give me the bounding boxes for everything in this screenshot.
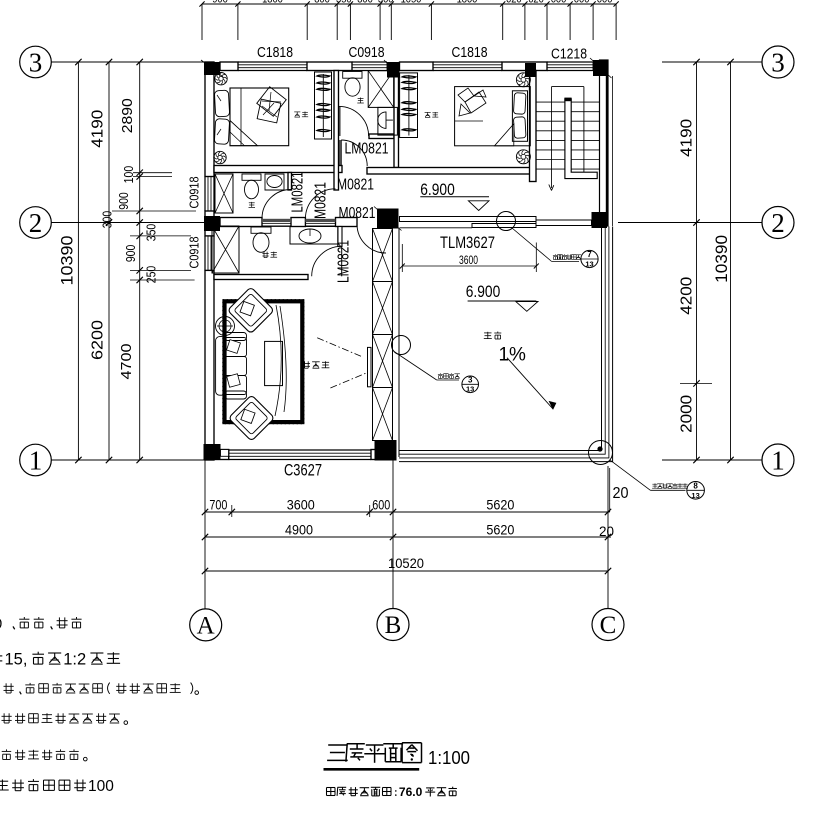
- svg-text:620: 620: [528, 0, 544, 6]
- svg-text:300: 300: [101, 211, 115, 229]
- svg-text:10520: 10520: [388, 555, 424, 571]
- svg-text:2890: 2890: [119, 98, 136, 133]
- svg-text:4900: 4900: [285, 522, 313, 538]
- svg-text:4700: 4700: [118, 344, 135, 380]
- svg-text:3600: 3600: [459, 255, 478, 267]
- svg-text:6200: 6200: [90, 320, 107, 360]
- svg-text:2: 2: [771, 208, 785, 238]
- svg-text:5620: 5620: [486, 522, 514, 538]
- svg-text:1: 1: [29, 445, 43, 475]
- svg-text:LM0821: LM0821: [345, 141, 389, 158]
- svg-text:13: 13: [585, 260, 593, 269]
- svg-text:600: 600: [551, 0, 567, 6]
- svg-text:B: B: [385, 612, 402, 639]
- svg-text:1800: 1800: [262, 0, 283, 6]
- svg-text:800: 800: [357, 0, 373, 6]
- svg-text:620: 620: [506, 0, 522, 6]
- svg-text:100: 100: [122, 166, 136, 184]
- svg-text:3: 3: [771, 47, 785, 77]
- svg-text:3: 3: [29, 47, 43, 77]
- svg-text:C: C: [600, 612, 617, 639]
- svg-text:C0918: C0918: [349, 44, 385, 61]
- svg-text:350: 350: [336, 0, 352, 6]
- svg-text:6.900: 6.900: [466, 282, 501, 301]
- svg-text:13: 13: [466, 385, 474, 394]
- svg-text:LM0821: LM0821: [336, 240, 353, 283]
- svg-text:10390: 10390: [58, 236, 77, 286]
- svg-text:C1818: C1818: [257, 44, 293, 61]
- svg-text:900: 900: [212, 0, 228, 6]
- svg-text:LM0821: LM0821: [290, 171, 307, 212]
- svg-text:250: 250: [145, 266, 159, 284]
- svg-text:700: 700: [209, 497, 227, 513]
- svg-text:1050: 1050: [401, 0, 422, 6]
- svg-text:4190: 4190: [679, 119, 696, 157]
- svg-text:4190: 4190: [90, 110, 107, 148]
- svg-text:900: 900: [117, 192, 131, 210]
- svg-text:A: A: [197, 613, 215, 640]
- svg-text:M0821: M0821: [337, 177, 374, 194]
- svg-text:C0918: C0918: [188, 236, 202, 268]
- svg-text:1:2: 1:2: [63, 651, 86, 669]
- svg-text:8: 8: [693, 481, 698, 490]
- svg-text:1800: 1800: [457, 0, 478, 6]
- svg-text:800: 800: [314, 0, 330, 6]
- svg-text:76.0: 76.0: [399, 785, 423, 799]
- svg-text:300: 300: [378, 0, 394, 6]
- svg-text:350: 350: [145, 224, 159, 242]
- svg-text:3600: 3600: [287, 497, 315, 513]
- svg-text:20: 20: [599, 523, 614, 539]
- svg-text:5620: 5620: [486, 497, 514, 513]
- svg-text:M0821: M0821: [312, 182, 329, 219]
- svg-text:2000: 2000: [679, 395, 696, 433]
- svg-text:C3627: C3627: [284, 461, 322, 480]
- svg-text:7: 7: [587, 250, 592, 259]
- svg-text:1: 1: [771, 445, 785, 475]
- svg-text:600: 600: [597, 0, 613, 6]
- svg-text:M0821: M0821: [339, 205, 376, 222]
- svg-text:15,: 15,: [5, 651, 28, 669]
- svg-text:4200: 4200: [679, 277, 696, 315]
- svg-text:1%: 1%: [498, 345, 526, 366]
- svg-text:600: 600: [574, 0, 590, 6]
- svg-text:3: 3: [468, 375, 473, 384]
- svg-text:2: 2: [29, 208, 43, 238]
- svg-text:1:100: 1:100: [428, 747, 470, 768]
- svg-text:C1218: C1218: [551, 46, 587, 63]
- svg-text:C1818: C1818: [452, 44, 488, 61]
- svg-text:13: 13: [691, 491, 699, 500]
- svg-text:100: 100: [88, 778, 114, 795]
- svg-text:10390: 10390: [712, 235, 731, 283]
- svg-text:6.900: 6.900: [420, 180, 455, 199]
- svg-text:900: 900: [124, 245, 138, 263]
- svg-text:TLM3627: TLM3627: [440, 233, 495, 252]
- svg-text:C0918: C0918: [188, 176, 202, 208]
- svg-text:30: 30: [0, 616, 2, 632]
- svg-text:20: 20: [613, 485, 629, 502]
- svg-text:600: 600: [372, 497, 390, 513]
